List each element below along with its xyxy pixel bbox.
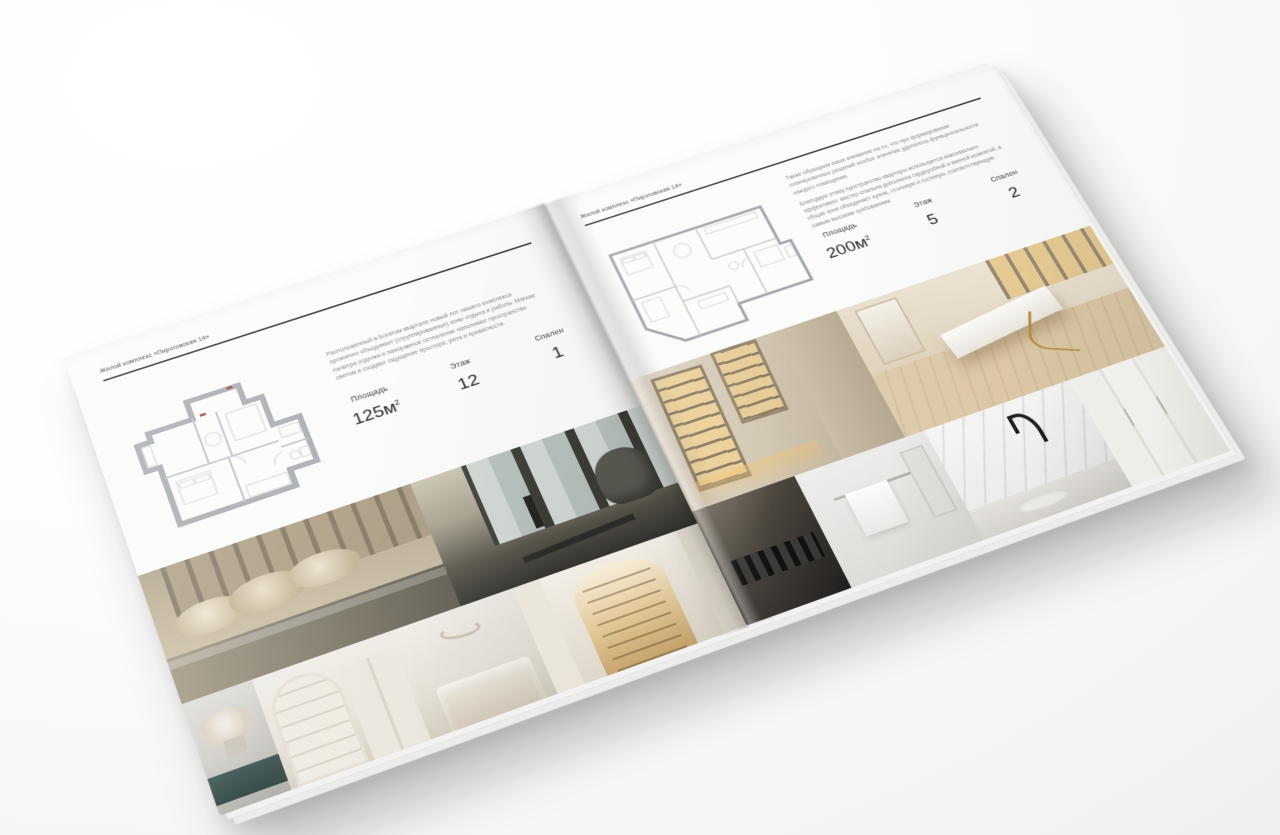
stat-bedrooms: Спален 1: [525, 323, 584, 369]
stat-area-value: 200м2: [823, 233, 875, 263]
page-header-caption: Жилой комплекс «Пироговская 14»: [99, 334, 210, 374]
stat-floor-value: 5: [908, 206, 958, 235]
open-brochure-mockup: Жилой комплекс «Пироговская 14»: [63, 63, 1230, 816]
stat-bedrooms-value: 1: [532, 338, 584, 369]
stat-bedrooms-value: 2: [989, 179, 1039, 208]
stat-floor: Этаж 12: [436, 353, 495, 399]
stat-floor-value: 12: [443, 367, 495, 399]
brochure-spread: Жилой комплекс «Пироговская 14»: [63, 63, 1230, 816]
stat-area: Площадь 125м2: [344, 382, 404, 430]
